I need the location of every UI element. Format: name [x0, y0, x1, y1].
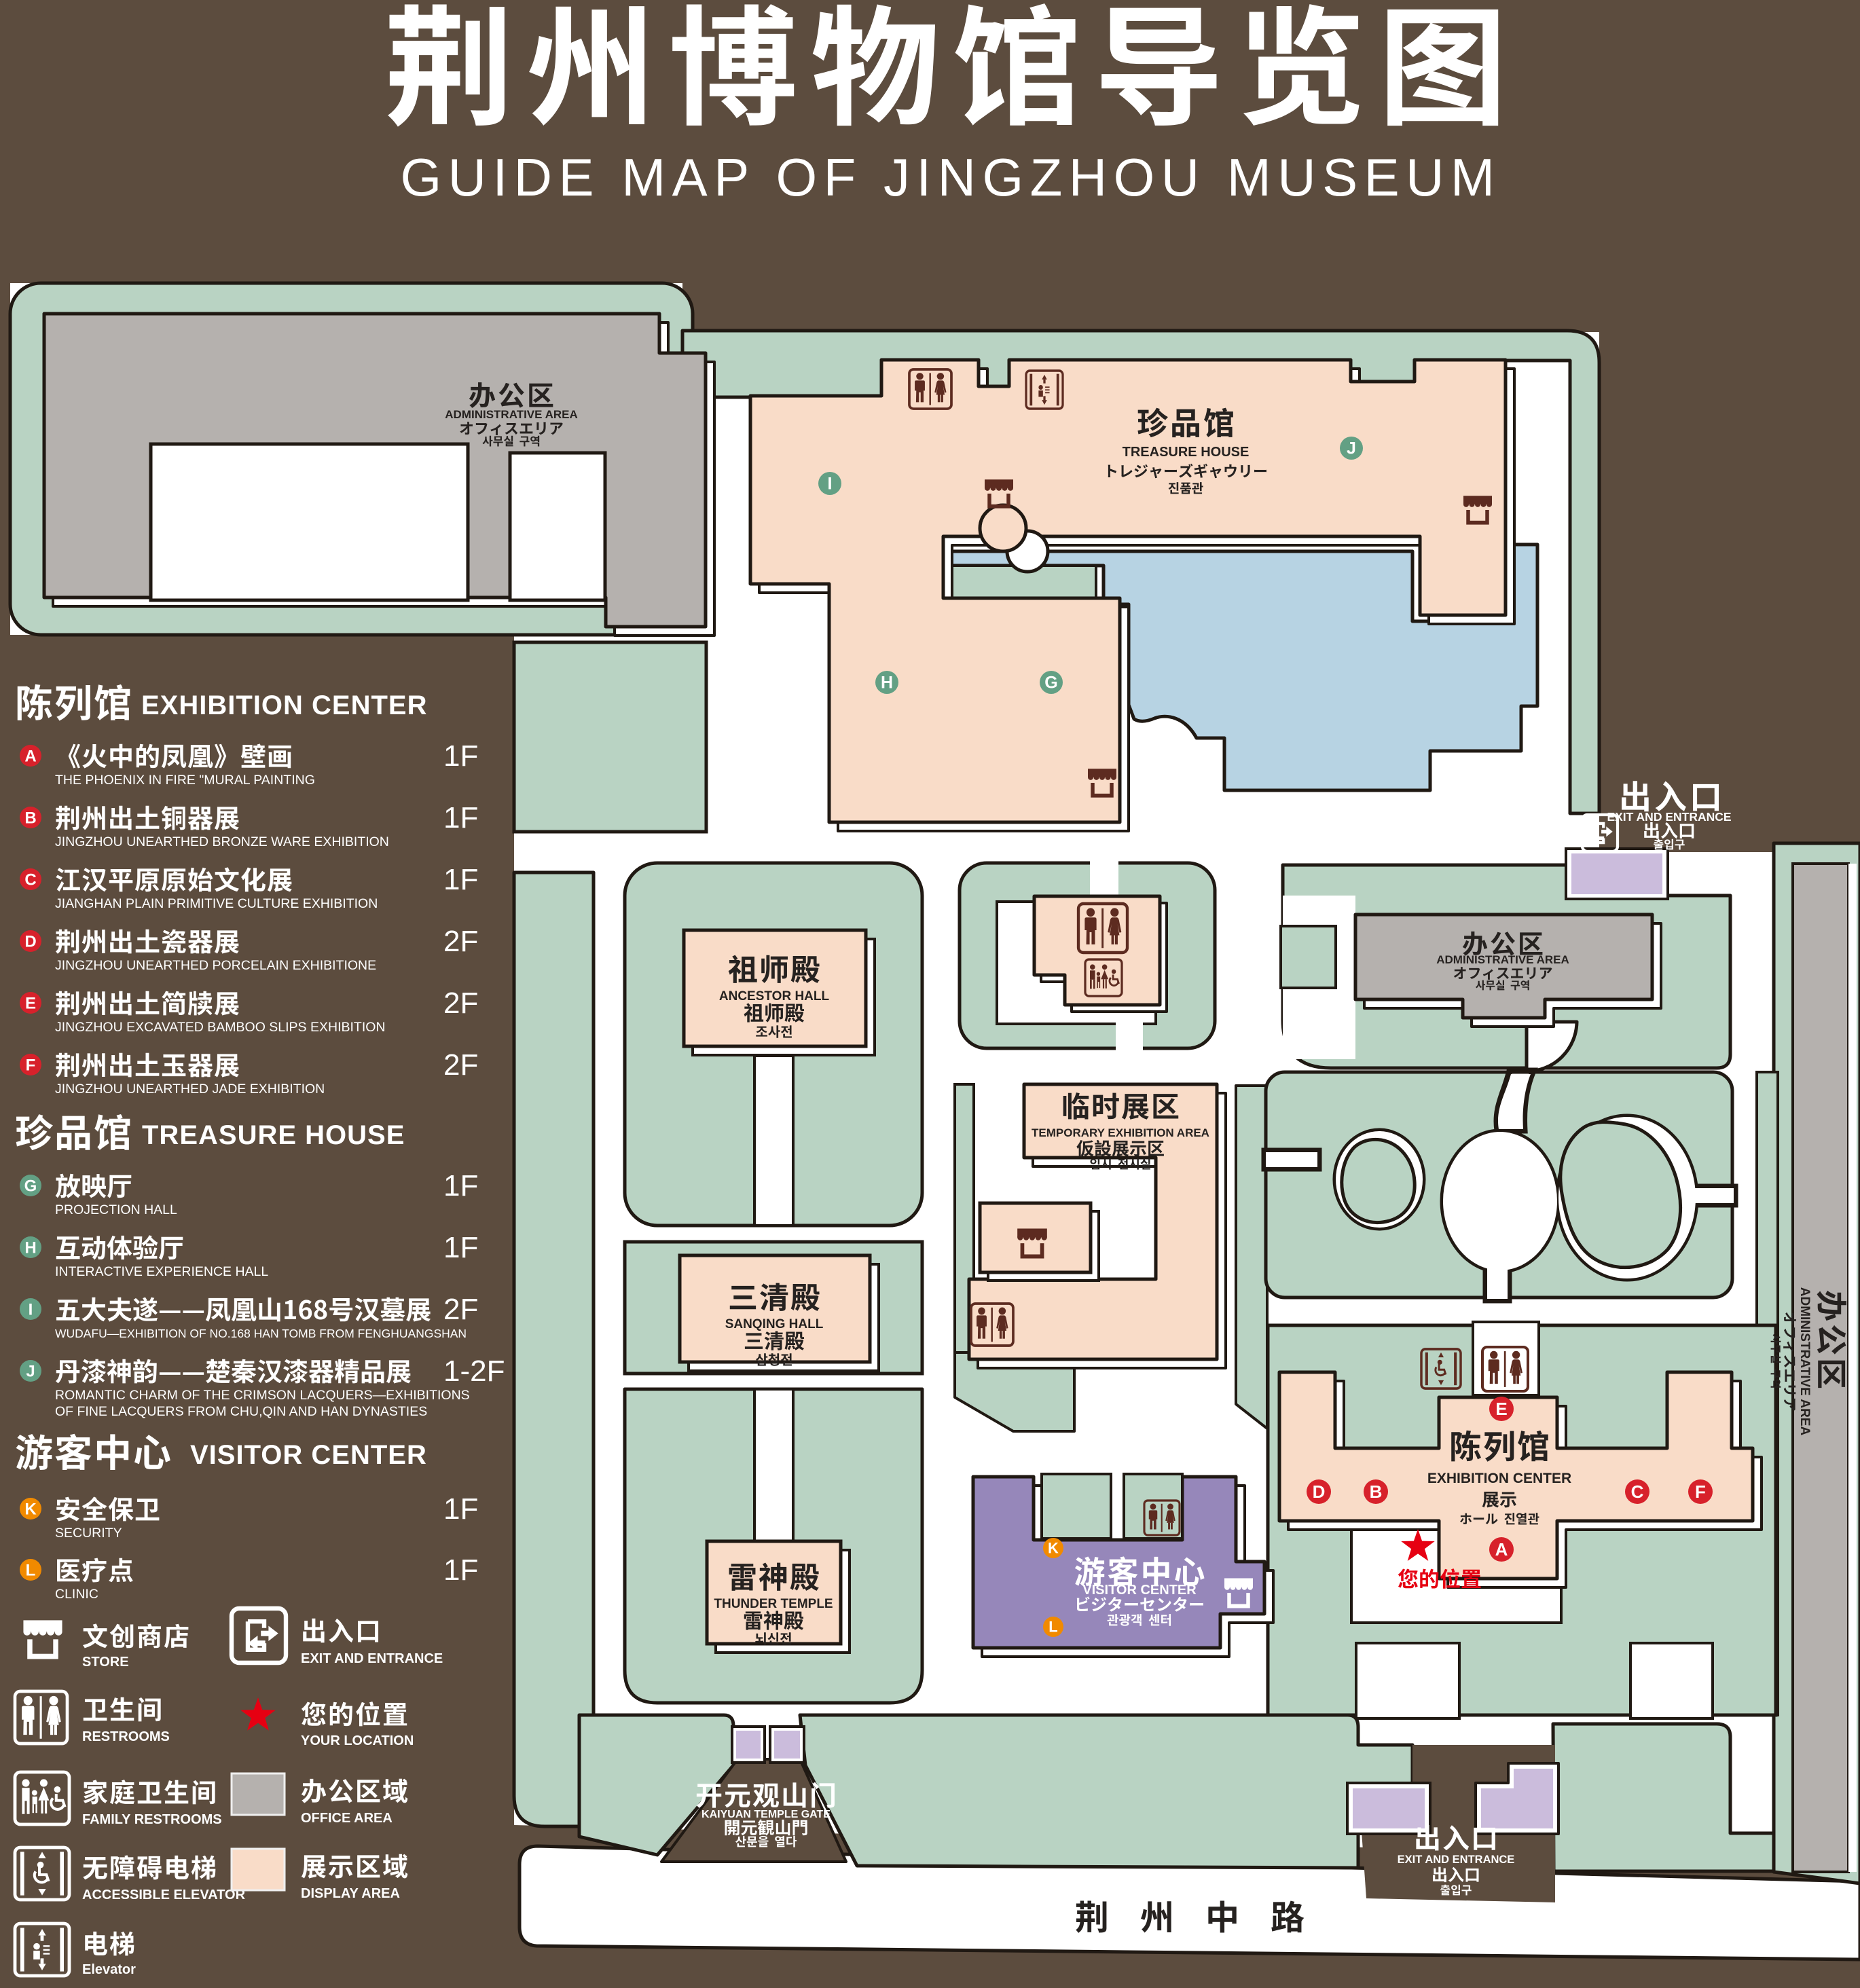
svg-text:INTERACTIVE EXPERIENCE HALL: INTERACTIVE EXPERIENCE HALL: [55, 1264, 268, 1279]
svg-text:1F: 1F: [443, 863, 478, 896]
svg-text:1F: 1F: [443, 1169, 478, 1202]
svg-text:SECURITY: SECURITY: [55, 1526, 122, 1541]
svg-text:C: C: [24, 870, 36, 889]
svg-text:Elevator: Elevator: [82, 1962, 136, 1977]
svg-text:SANQING HALL: SANQING HALL: [725, 1317, 824, 1331]
svg-text:EXHIBITION CENTER: EXHIBITION CENTER: [141, 691, 427, 720]
svg-text:2F: 2F: [443, 987, 478, 1020]
svg-text:OF FINE LACQUERS FROM CHU,QIN: OF FINE LACQUERS FROM CHU,QIN AND HAN DY…: [55, 1404, 427, 1419]
svg-text:I: I: [29, 1300, 33, 1319]
svg-text:A: A: [24, 747, 36, 765]
svg-text:B: B: [1370, 1481, 1383, 1502]
svg-text:1F: 1F: [443, 1492, 478, 1526]
svg-text:G: G: [24, 1177, 37, 1195]
svg-text:CLINIC: CLINIC: [55, 1587, 98, 1602]
svg-text:ADMINISTRATIVE AREA: ADMINISTRATIVE AREA: [1798, 1287, 1812, 1436]
svg-text:TREASURE HOUSE: TREASURE HOUSE: [142, 1120, 405, 1150]
svg-text:1F: 1F: [443, 739, 478, 773]
svg-text:JINGZHOU UNEARTHED PORCELAIN E: JINGZHOU UNEARTHED PORCELAIN EXHIBITIONE: [55, 958, 376, 973]
svg-text:EXIT AND ENTRANCE: EXIT AND ENTRANCE: [1398, 1854, 1515, 1866]
svg-text:H: H: [881, 674, 893, 693]
svg-text:OFFICE AREA: OFFICE AREA: [301, 1811, 393, 1826]
svg-text:D: D: [24, 932, 36, 951]
svg-text:VISITOR CENTER: VISITOR CENTER: [190, 1440, 427, 1470]
svg-text:EXHIBITION CENTER: EXHIBITION CENTER: [1427, 1471, 1571, 1486]
svg-text:K: K: [1048, 1540, 1059, 1557]
svg-text:WUDAFU—EXHIBITION OF NO.168 HA: WUDAFU—EXHIBITION OF NO.168 HAN TOMB FRO…: [55, 1327, 467, 1340]
svg-text:L: L: [26, 1561, 36, 1579]
svg-text:JIANGHAN PLAIN PRIMITIVE CULTU: JIANGHAN PLAIN PRIMITIVE CULTURE EXHIBIT…: [55, 896, 378, 911]
svg-text:B: B: [24, 809, 36, 827]
svg-text:E: E: [25, 994, 36, 1012]
svg-text:2F: 2F: [443, 925, 478, 958]
svg-text:J: J: [26, 1362, 35, 1380]
svg-text:ADMINISTRATIVE AREA: ADMINISTRATIVE AREA: [1436, 953, 1569, 966]
svg-text:1-2F: 1-2F: [443, 1355, 505, 1388]
svg-text:JINGZHOU UNEARTHED JADE EXHIBI: JINGZHOU UNEARTHED JADE EXHIBITION: [55, 1082, 325, 1097]
svg-text:1F: 1F: [443, 1553, 478, 1587]
svg-text:THUNDER TEMPLE: THUNDER TEMPLE: [714, 1597, 833, 1611]
svg-text:I: I: [828, 475, 833, 494]
svg-text:2F: 2F: [443, 1048, 478, 1082]
svg-text:C: C: [1631, 1481, 1644, 1502]
svg-text:E: E: [1495, 1399, 1507, 1419]
svg-text:KAIYUAN TEMPLE GATE: KAIYUAN TEMPLE GATE: [701, 1809, 831, 1820]
svg-text:1F: 1F: [443, 801, 478, 834]
svg-text:G: G: [1044, 674, 1057, 693]
svg-text:TREASURE HOUSE: TREASURE HOUSE: [1123, 445, 1250, 460]
svg-text:VISITOR CENTER: VISITOR CENTER: [1082, 1583, 1197, 1598]
svg-text:2F: 2F: [443, 1293, 478, 1326]
svg-text:ADMINISTRATIVE AREA: ADMINISTRATIVE AREA: [445, 408, 578, 421]
svg-text:JINGZHOU UNEARTHED BRONZE WARE: JINGZHOU UNEARTHED BRONZE WARE EXHIBITIO…: [55, 834, 389, 849]
svg-text:D: D: [1313, 1481, 1326, 1502]
svg-text:EXIT AND ENTRANCE: EXIT AND ENTRANCE: [1607, 810, 1731, 824]
svg-text:F: F: [26, 1056, 36, 1074]
svg-text:THE PHOENIX IN FIRE "MURAL PAI: THE PHOENIX IN FIRE "MURAL PAINTING: [55, 773, 315, 788]
svg-text:1F: 1F: [443, 1231, 478, 1264]
svg-text:J: J: [1347, 439, 1356, 458]
svg-text:FAMILY RESTROOMS: FAMILY RESTROOMS: [82, 1812, 222, 1827]
svg-text:K: K: [24, 1500, 37, 1518]
svg-text:H: H: [24, 1238, 36, 1257]
svg-text:A: A: [1495, 1539, 1508, 1560]
svg-text:ANCESTOR HALL: ANCESTOR HALL: [719, 989, 830, 1004]
svg-text:JINGZHOU EXCAVATED BAMBOO SLIP: JINGZHOU EXCAVATED BAMBOO SLIPS EXHIBITI…: [55, 1020, 386, 1035]
svg-text:STORE: STORE: [82, 1655, 129, 1670]
svg-text:ACCESSIBLE ELEVATOR: ACCESSIBLE ELEVATOR: [82, 1888, 246, 1902]
svg-text:ROMANTIC CHARM OF THE CRIMSON: ROMANTIC CHARM OF THE CRIMSON LACQUERS—E…: [55, 1388, 470, 1403]
svg-text:PROJECTION HALL: PROJECTION HALL: [55, 1202, 177, 1217]
svg-text:F: F: [1695, 1481, 1706, 1502]
svg-text:TEMPORARY EXHIBITION AREA: TEMPORARY EXHIBITION AREA: [1032, 1126, 1209, 1139]
svg-text:EXIT AND ENTRANCE: EXIT AND ENTRANCE: [301, 1651, 443, 1666]
svg-text:GUIDE MAP OF JINGZHOU MUSEUM: GUIDE MAP OF JINGZHOU MUSEUM: [401, 147, 1501, 207]
svg-text:DISPLAY AREA: DISPLAY AREA: [301, 1886, 400, 1901]
svg-text:YOUR LOCATION: YOUR LOCATION: [301, 1733, 414, 1748]
svg-text:RESTROOMS: RESTROOMS: [82, 1729, 170, 1744]
svg-text:L: L: [1048, 1619, 1057, 1636]
